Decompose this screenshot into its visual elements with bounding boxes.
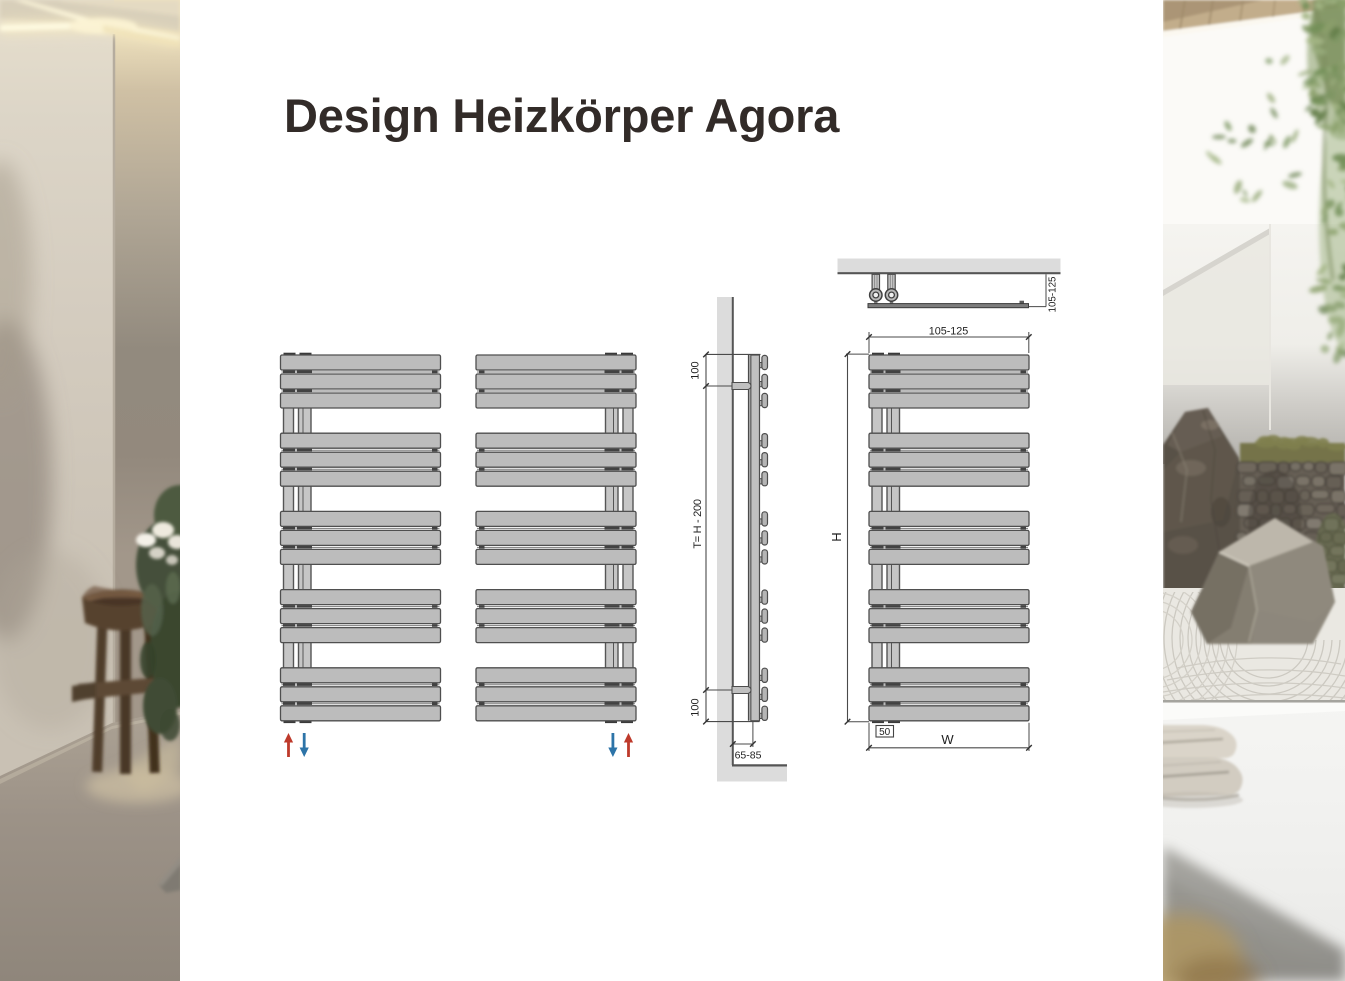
svg-text:100: 100 — [690, 361, 702, 379]
svg-text:T= H - 200: T= H - 200 — [692, 499, 704, 548]
svg-text:105-125: 105-125 — [929, 326, 969, 338]
svg-text:100: 100 — [690, 698, 702, 716]
svg-text:65-85: 65-85 — [735, 750, 762, 762]
svg-text:H: H — [829, 532, 844, 541]
svg-text:50: 50 — [879, 727, 891, 738]
svg-text:105-125: 105-125 — [1048, 276, 1059, 313]
svg-text:W: W — [941, 732, 954, 747]
